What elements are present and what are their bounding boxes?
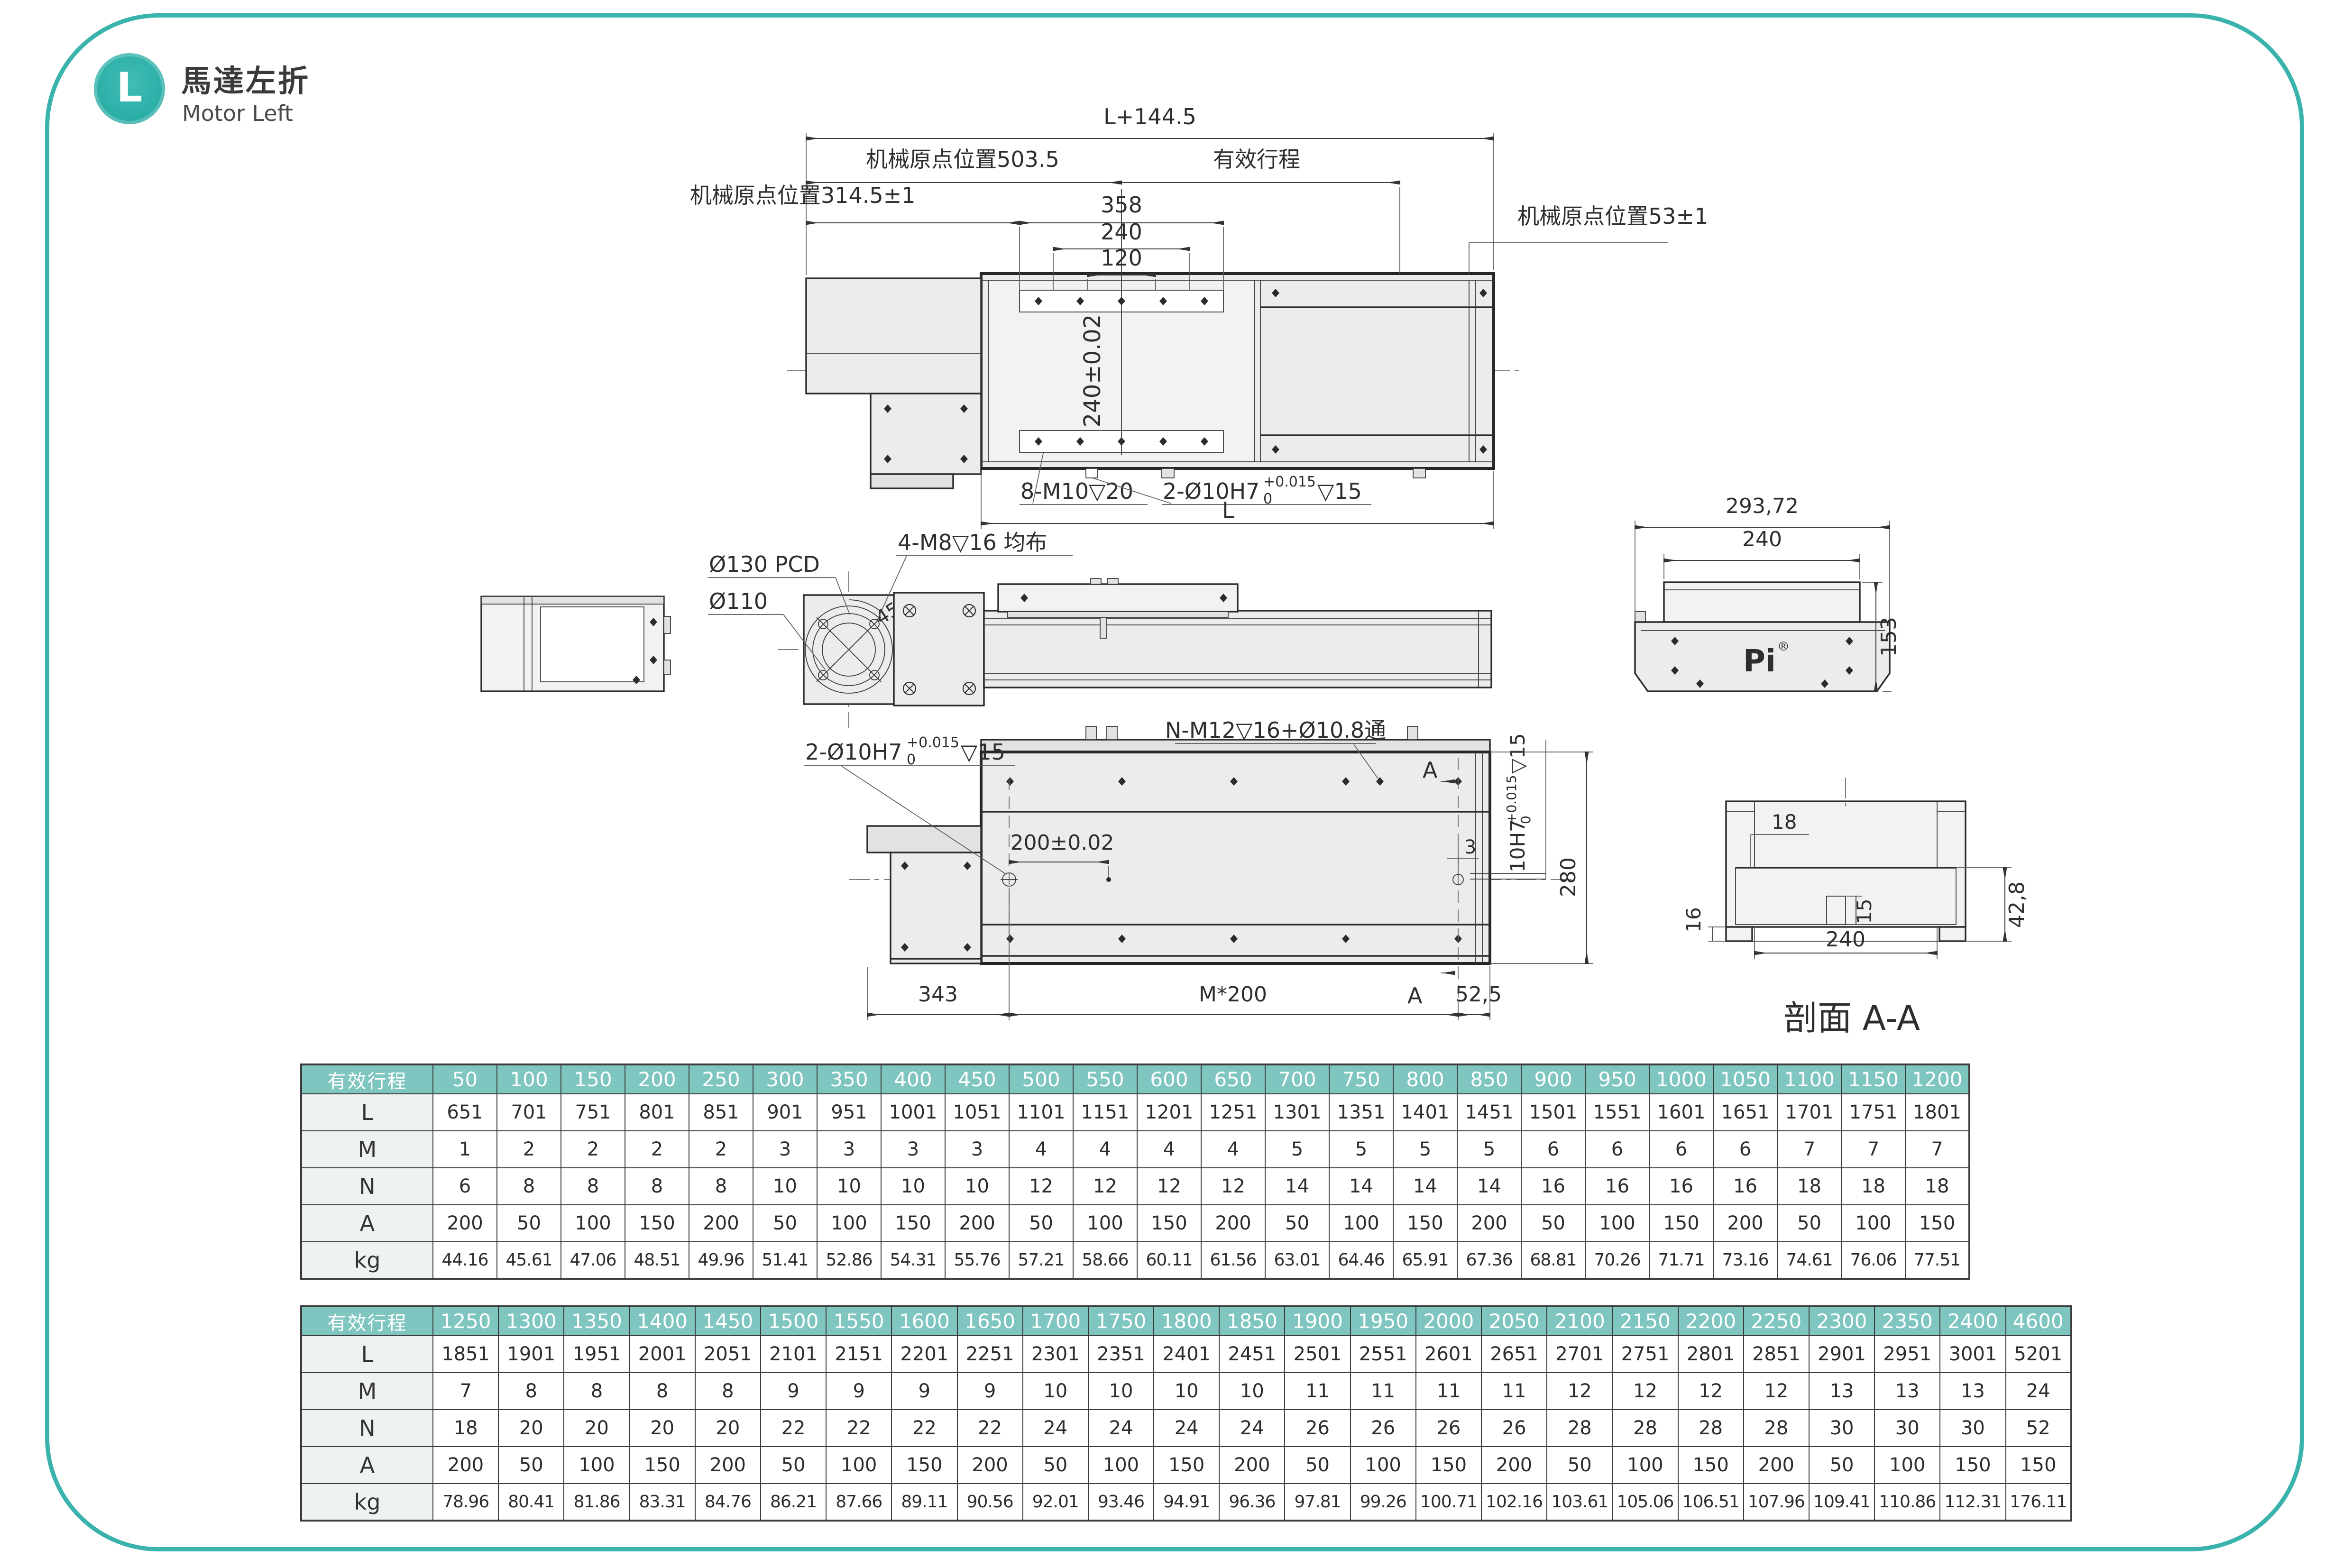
- dim-sec-18: 18: [1772, 810, 1797, 834]
- stroke-header-cell: 4600: [2006, 1306, 2072, 1336]
- dim-sec-42-8: 42,8: [2005, 881, 2029, 928]
- table-cell: 22: [761, 1410, 826, 1447]
- table-cell: 47.06: [561, 1242, 625, 1279]
- table-cell: 3001: [1940, 1336, 2005, 1373]
- table-cell: 1001: [881, 1094, 945, 1131]
- dim-stroke-label: 有效行程: [1213, 147, 1300, 172]
- table-cell: 200: [433, 1447, 498, 1484]
- table-cell: 1051: [945, 1094, 1009, 1131]
- table-cell: 12: [1137, 1168, 1201, 1205]
- table-cell: 10: [945, 1168, 1009, 1205]
- stroke-header-cell: 1800: [1154, 1306, 1219, 1336]
- table-cell: 24: [1219, 1410, 1285, 1447]
- table-cell: 30: [1809, 1410, 1874, 1447]
- table-cell: 8: [564, 1373, 629, 1410]
- table-cell: 16: [1585, 1168, 1649, 1205]
- table-cell: 1251: [1201, 1094, 1265, 1131]
- table-cell: 50: [1285, 1447, 1350, 1484]
- table-cell: 8: [561, 1168, 625, 1205]
- stroke-header-cell: 1700: [1023, 1306, 1088, 1336]
- bottom-view: 2-Ø10H7 +0.015 0 ▽15 N-M12▽16+Ø10.8通 200…: [804, 717, 1593, 1020]
- table-cell: 200: [1201, 1205, 1265, 1242]
- table-cell: 100: [1088, 1447, 1154, 1484]
- stroke-header-cell: 2350: [1874, 1306, 1940, 1336]
- table-cell: 951: [817, 1094, 881, 1131]
- table-cell: 2251: [957, 1336, 1023, 1373]
- table-cell: 1451: [1457, 1094, 1521, 1131]
- table-cell: 4: [1073, 1131, 1137, 1168]
- table-cell: 12: [1612, 1373, 1678, 1410]
- stroke-header-cell: 900: [1521, 1064, 1585, 1094]
- dim-240: 240: [1101, 219, 1142, 245]
- dim-origin-503: 机械原点位置503.5: [866, 147, 1059, 172]
- table-cell: 7: [433, 1373, 498, 1410]
- table-cell: 50: [498, 1447, 564, 1484]
- table-cell: 13: [1874, 1373, 1940, 1410]
- table-cell: 7: [1841, 1131, 1905, 1168]
- stroke-header-cell: 700: [1265, 1064, 1329, 1094]
- table-cell: 70.26: [1585, 1242, 1649, 1279]
- table1-grid: 有效行程501001502002503003504004505005506006…: [300, 1064, 1970, 1280]
- table-cell: 901: [753, 1094, 817, 1131]
- table-cell: 80.41: [498, 1484, 564, 1521]
- stroke-header-cell: 1550: [826, 1306, 891, 1336]
- dim-52-5: 52,5: [1455, 982, 1502, 1007]
- table-cell: 2801: [1678, 1336, 1744, 1373]
- table-cell: 100: [564, 1447, 629, 1484]
- stroke-header-cell: 2150: [1612, 1306, 1678, 1336]
- table-cell: 200: [689, 1205, 753, 1242]
- table-cell: 1701: [1777, 1094, 1841, 1131]
- table-cell: 18: [433, 1410, 498, 1447]
- table-cell: 14: [1265, 1168, 1329, 1205]
- table-cell: 100: [826, 1447, 891, 1484]
- table-cell: 93.46: [1088, 1484, 1154, 1521]
- table-cell: 2751: [1612, 1336, 1678, 1373]
- table-cell: 1751: [1841, 1094, 1905, 1131]
- note-10h7-prefix: 10H7: [1506, 819, 1529, 872]
- stroke-header-cell: 500: [1009, 1064, 1073, 1094]
- table-cell: 96.36: [1219, 1484, 1285, 1521]
- table-cell: 61.56: [1201, 1242, 1265, 1279]
- stroke-header-cell: 1600: [891, 1306, 957, 1336]
- table-cell: 67.36: [1457, 1242, 1521, 1279]
- section-view: 18 16 240 15 42,8 剖面 A-A: [1682, 778, 2029, 1038]
- table-cell: 50: [1547, 1447, 1612, 1484]
- table-cell: 150: [1137, 1205, 1201, 1242]
- note-d110: Ø110: [709, 588, 768, 614]
- table-cell: 100: [1073, 1205, 1137, 1242]
- table-cell: 20: [564, 1410, 629, 1447]
- table-cell: 28: [1547, 1410, 1612, 1447]
- stroke-header-cell: 1050: [1713, 1064, 1777, 1094]
- table-cell: 2651: [1481, 1336, 1547, 1373]
- spec-table-1: 有效行程501001502002503003504004505005506006…: [300, 1064, 1970, 1280]
- stroke-header-cell: 250: [689, 1064, 753, 1094]
- table-cell: 3: [945, 1131, 1009, 1168]
- table-cell: 2501: [1285, 1336, 1350, 1373]
- note-10h7-sub: 0: [1518, 816, 1534, 824]
- dim-end-240: 240: [1742, 527, 1782, 551]
- table-cell: 150: [1678, 1447, 1744, 1484]
- stroke-header-cell: 1400: [630, 1306, 695, 1336]
- table-cell: 6: [1521, 1131, 1585, 1168]
- row-label-cell: kg: [301, 1484, 433, 1521]
- table-cell: 2: [497, 1131, 561, 1168]
- table-cell: 52: [2006, 1410, 2072, 1447]
- table-cell: 12: [1744, 1373, 1809, 1410]
- table-cell: 2701: [1547, 1336, 1612, 1373]
- table-cell: 1151: [1073, 1094, 1137, 1131]
- table-cell: 1901: [498, 1336, 564, 1373]
- table-cell: 8: [498, 1373, 564, 1410]
- brand-logo-reg: ®: [1777, 640, 1790, 654]
- table-cell: 9: [826, 1373, 891, 1410]
- table-cell: 20: [498, 1410, 564, 1447]
- table-cell: 100: [1329, 1205, 1393, 1242]
- table-cell: 89.11: [891, 1484, 957, 1521]
- table-cell: 150: [891, 1447, 957, 1484]
- stroke-header-cell: 1450: [695, 1306, 761, 1336]
- dim-200-tol: 200±0.02: [1011, 831, 1114, 855]
- table-cell: 103.61: [1547, 1484, 1612, 1521]
- note-10h7-suffix: ▽15: [1506, 733, 1529, 774]
- stroke-header-cell: 1750: [1088, 1306, 1154, 1336]
- table-cell: 28: [1744, 1410, 1809, 1447]
- table-cell: 10: [1154, 1373, 1219, 1410]
- table-cell: 14: [1457, 1168, 1521, 1205]
- table-cell: 84.76: [695, 1484, 761, 1521]
- table-cell: 50: [1009, 1205, 1073, 1242]
- section-title: 剖面 A-A: [1783, 998, 1920, 1038]
- table-cell: 2: [689, 1131, 753, 1168]
- stroke-header-cell: 2050: [1481, 1306, 1547, 1336]
- table-cell: 50: [753, 1205, 817, 1242]
- table-cell: 68.81: [1521, 1242, 1585, 1279]
- dim-length-l: L: [1222, 497, 1234, 523]
- stroke-header-cell: 850: [1457, 1064, 1521, 1094]
- table-cell: 51.41: [753, 1242, 817, 1279]
- note-b-2d10-suffix: ▽15: [961, 739, 1005, 765]
- table-cell: 8: [497, 1168, 561, 1205]
- table-cell: 50: [1809, 1447, 1874, 1484]
- table-cell: 83.31: [630, 1484, 695, 1521]
- dim-3: 3: [1464, 836, 1476, 858]
- table-cell: 6: [1649, 1131, 1713, 1168]
- table-cell: 24: [1088, 1410, 1154, 1447]
- table-cell: 1951: [564, 1336, 629, 1373]
- table-cell: 150: [1649, 1205, 1713, 1242]
- table-cell: 100: [1841, 1205, 1905, 1242]
- table-cell: 200: [945, 1205, 1009, 1242]
- table-cell: 9: [761, 1373, 826, 1410]
- table-cell: 22: [957, 1410, 1023, 1447]
- dim-total-length: L+144.5: [1103, 104, 1196, 129]
- table-cell: 200: [1457, 1205, 1521, 1242]
- stroke-header-cell: 950: [1585, 1064, 1649, 1094]
- table-cell: 200: [1219, 1447, 1285, 1484]
- table-cell: 24: [1023, 1410, 1088, 1447]
- table-cell: 2: [625, 1131, 689, 1168]
- stroke-header-cell: 100: [497, 1064, 561, 1094]
- table-cell: 1651: [1713, 1094, 1777, 1131]
- note-b-2d10-prefix: 2-Ø10H7: [805, 739, 902, 765]
- table-cell: 2101: [761, 1336, 826, 1373]
- stroke-header-cell: 1950: [1351, 1306, 1416, 1336]
- stroke-header-cell: 750: [1329, 1064, 1393, 1094]
- table-cell: 12: [1073, 1168, 1137, 1205]
- table-cell: 10: [881, 1168, 945, 1205]
- table-cell: 5: [1457, 1131, 1521, 1168]
- stroke-header-cell: 1000: [1649, 1064, 1713, 1094]
- table-cell: 2451: [1219, 1336, 1285, 1373]
- table-cell: 109.41: [1809, 1484, 1874, 1521]
- row-label-cell: A: [301, 1205, 433, 1242]
- table-cell: 12: [1009, 1168, 1073, 1205]
- table-cell: 26: [1285, 1410, 1350, 1447]
- table-cell: 10: [753, 1168, 817, 1205]
- table-cell: 102.16: [1481, 1484, 1547, 1521]
- stroke-header-cell: 1100: [1777, 1064, 1841, 1094]
- table-cell: 74.61: [1777, 1242, 1841, 1279]
- stroke-header-cell: 600: [1137, 1064, 1201, 1094]
- table-cell: 14: [1393, 1168, 1457, 1205]
- table-cell: 18: [1905, 1168, 1969, 1205]
- stroke-header-cell: 1500: [761, 1306, 826, 1336]
- stroke-header-cell: 1150: [1841, 1064, 1905, 1094]
- dim-280: 280: [1556, 857, 1580, 897]
- note-10h7-sup: +0.015: [1504, 775, 1519, 824]
- note-pcd: Ø130 PCD: [709, 551, 820, 577]
- table-cell: 26: [1416, 1410, 1481, 1447]
- table-cell: 851: [689, 1094, 753, 1131]
- table-cell: 99.26: [1351, 1484, 1416, 1521]
- table-cell: 200: [695, 1447, 761, 1484]
- table-cell: 5: [1393, 1131, 1457, 1168]
- row-label-cell: L: [301, 1336, 433, 1373]
- dim-358: 358: [1101, 192, 1142, 218]
- table-cell: 1401: [1393, 1094, 1457, 1131]
- row-label-cell: N: [301, 1168, 433, 1205]
- table-cell: 8: [625, 1168, 689, 1205]
- row-label-cell: kg: [301, 1242, 433, 1279]
- dim-origin-53: 机械原点位置53±1: [1517, 203, 1708, 229]
- table-cell: 30: [1874, 1410, 1940, 1447]
- table-cell: 65.91: [1393, 1242, 1457, 1279]
- row-label-cell: L: [301, 1094, 433, 1131]
- table-cell: 13: [1809, 1373, 1874, 1410]
- table-cell: 107.96: [1744, 1484, 1809, 1521]
- table-cell: 1201: [1137, 1094, 1201, 1131]
- stroke-header-cell: 2250: [1744, 1306, 1809, 1336]
- stroke-header-cell: 2400: [1940, 1306, 2005, 1336]
- table-cell: 100: [817, 1205, 881, 1242]
- table-cell: 71.71: [1649, 1242, 1713, 1279]
- stroke-header-cell: 300: [753, 1064, 817, 1094]
- dim-table-width-tol: 240±0.02: [1079, 314, 1106, 428]
- stroke-header-cell: 1300: [498, 1306, 564, 1336]
- dim-sec-15: 15: [1853, 899, 1876, 924]
- table-cell: 100: [1874, 1447, 1940, 1484]
- table-cell: 28: [1678, 1410, 1744, 1447]
- table-cell: 60.11: [1137, 1242, 1201, 1279]
- table-cell: 58.66: [1073, 1242, 1137, 1279]
- table-cell: 2151: [826, 1336, 891, 1373]
- table-cell: 22: [826, 1410, 891, 1447]
- table-cell: 5201: [2006, 1336, 2072, 1373]
- table-cell: 18: [1841, 1168, 1905, 1205]
- note-nm12: N-M12▽16+Ø10.8通: [1165, 717, 1386, 743]
- dim-end-153: 153: [1877, 617, 1901, 657]
- table-cell: 50: [1521, 1205, 1585, 1242]
- table-cell: 16: [1713, 1168, 1777, 1205]
- table-cell: 54.31: [881, 1242, 945, 1279]
- table-cell: 150: [1940, 1447, 2005, 1484]
- table-cell: 100: [561, 1205, 625, 1242]
- table-cell: 3: [753, 1131, 817, 1168]
- table-cell: 1501: [1521, 1094, 1585, 1131]
- table-cell: 8: [689, 1168, 753, 1205]
- table-cell: 81.86: [564, 1484, 629, 1521]
- table-cell: 2351: [1088, 1336, 1154, 1373]
- note-b-2d10-sup: +0.015: [907, 734, 959, 751]
- table-cell: 2301: [1023, 1336, 1088, 1373]
- dim-sec-240: 240: [1826, 927, 1865, 952]
- table-cell: 751: [561, 1094, 625, 1131]
- section-label-a-bottom: A: [1407, 983, 1423, 1009]
- stroke-header-cell: 1250: [433, 1306, 498, 1336]
- table-cell: 150: [2006, 1447, 2072, 1484]
- dim-120: 120: [1101, 245, 1142, 271]
- table-cell: 12: [1678, 1373, 1744, 1410]
- table-cell: 2001: [630, 1336, 695, 1373]
- table-cell: 92.01: [1023, 1484, 1088, 1521]
- dim-sec-16: 16: [1682, 907, 1705, 932]
- dim-343: 343: [918, 982, 958, 1007]
- technical-drawing: 240±0.02 L+144.5 机械原点位置503.5 有效行程: [0, 0, 2352, 1067]
- stroke-header-cell: 2200: [1678, 1306, 1744, 1336]
- table-cell: 26: [1481, 1410, 1547, 1447]
- table-cell: 9: [957, 1373, 1023, 1410]
- table-cell: 50: [1023, 1447, 1088, 1484]
- stroke-header-label: 有效行程: [301, 1306, 433, 1336]
- table-cell: 45.61: [497, 1242, 561, 1279]
- table-cell: 2951: [1874, 1336, 1940, 1373]
- row-label-cell: N: [301, 1410, 433, 1447]
- table-cell: 11: [1285, 1373, 1350, 1410]
- table-cell: 24: [2006, 1373, 2072, 1410]
- table-cell: 52.86: [817, 1242, 881, 1279]
- top-view: 240±0.02 L+144.5 机械原点位置503.5 有效行程: [690, 104, 1708, 529]
- stroke-header-cell: 2300: [1809, 1306, 1874, 1336]
- stroke-header-cell: 1900: [1285, 1306, 1350, 1336]
- row-label-cell: A: [301, 1447, 433, 1484]
- table-cell: 73.16: [1713, 1242, 1777, 1279]
- stroke-header-cell: 550: [1073, 1064, 1137, 1094]
- stroke-header-cell: 650: [1201, 1064, 1265, 1094]
- table-cell: 50: [497, 1205, 561, 1242]
- table-cell: 7: [1905, 1131, 1969, 1168]
- dim-origin-314: 机械原点位置314.5±1: [690, 183, 916, 208]
- table-cell: 7: [1777, 1131, 1841, 1168]
- table-cell: 2551: [1351, 1336, 1416, 1373]
- table-cell: 150: [1416, 1447, 1481, 1484]
- stroke-header-cell: 50: [433, 1064, 497, 1094]
- table-cell: 94.91: [1154, 1484, 1219, 1521]
- stroke-header-cell: 400: [881, 1064, 945, 1094]
- table-cell: 1351: [1329, 1094, 1393, 1131]
- table-cell: 12: [1201, 1168, 1265, 1205]
- table-cell: 28: [1612, 1410, 1678, 1447]
- table-cell: 76.06: [1841, 1242, 1905, 1279]
- table-cell: 4: [1137, 1131, 1201, 1168]
- stroke-header-cell: 1850: [1219, 1306, 1285, 1336]
- table-cell: 651: [433, 1094, 497, 1131]
- table-cell: 6: [1585, 1131, 1649, 1168]
- table-cell: 2601: [1416, 1336, 1481, 1373]
- table-cell: 105.06: [1612, 1484, 1678, 1521]
- table-cell: 106.51: [1678, 1484, 1744, 1521]
- table-cell: 200: [433, 1205, 497, 1242]
- table-cell: 20: [630, 1410, 695, 1447]
- table-cell: 100: [1351, 1447, 1416, 1484]
- note-4-m8: 4-M8▽16 均布: [898, 530, 1047, 555]
- table-cell: 11: [1351, 1373, 1416, 1410]
- table-cell: 2401: [1154, 1336, 1219, 1373]
- table-cell: 150: [625, 1205, 689, 1242]
- table-cell: 801: [625, 1094, 689, 1131]
- note-2-d10-sup: +0.015: [1263, 474, 1316, 490]
- note-2-d10-prefix: 2-Ø10H7: [1163, 478, 1259, 504]
- table-cell: 110.86: [1874, 1484, 1940, 1521]
- table-cell: 1101: [1009, 1094, 1073, 1131]
- table-cell: 14: [1329, 1168, 1393, 1205]
- table-cell: 100: [1612, 1447, 1678, 1484]
- table-cell: 150: [1393, 1205, 1457, 1242]
- table-cell: 100.71: [1416, 1484, 1481, 1521]
- table-cell: 200: [957, 1447, 1023, 1484]
- stroke-header-label: 有效行程: [301, 1064, 433, 1094]
- side-view: 45° Ø130 PCD Ø110 4-M8▽16 均布: [481, 530, 1491, 728]
- table-cell: 86.21: [761, 1484, 826, 1521]
- table-cell: 200: [1481, 1447, 1547, 1484]
- table-cell: 1601: [1649, 1094, 1713, 1131]
- row-label-cell: M: [301, 1373, 433, 1410]
- table-cell: 701: [497, 1094, 561, 1131]
- table-cell: 11: [1416, 1373, 1481, 1410]
- table-cell: 2201: [891, 1336, 957, 1373]
- table-cell: 100: [1585, 1205, 1649, 1242]
- table-cell: 5: [1265, 1131, 1329, 1168]
- table-cell: 1551: [1585, 1094, 1649, 1131]
- table-cell: 150: [1154, 1447, 1219, 1484]
- dim-m200: M*200: [1199, 982, 1267, 1007]
- table-cell: 200: [1713, 1205, 1777, 1242]
- table-cell: 44.16: [433, 1242, 497, 1279]
- table-cell: 12: [1547, 1373, 1612, 1410]
- table-cell: 1801: [1905, 1094, 1969, 1131]
- table-cell: 10: [1023, 1373, 1088, 1410]
- stroke-header-cell: 2100: [1547, 1306, 1612, 1336]
- stroke-header-cell: 1650: [957, 1306, 1023, 1336]
- table-cell: 8: [695, 1373, 761, 1410]
- table-cell: 176.11: [2006, 1484, 2072, 1521]
- table-cell: 57.21: [1009, 1242, 1073, 1279]
- table-cell: 10: [1219, 1373, 1285, 1410]
- table-cell: 112.31: [1940, 1484, 2005, 1521]
- table-cell: 16: [1649, 1168, 1713, 1205]
- table-cell: 49.96: [689, 1242, 753, 1279]
